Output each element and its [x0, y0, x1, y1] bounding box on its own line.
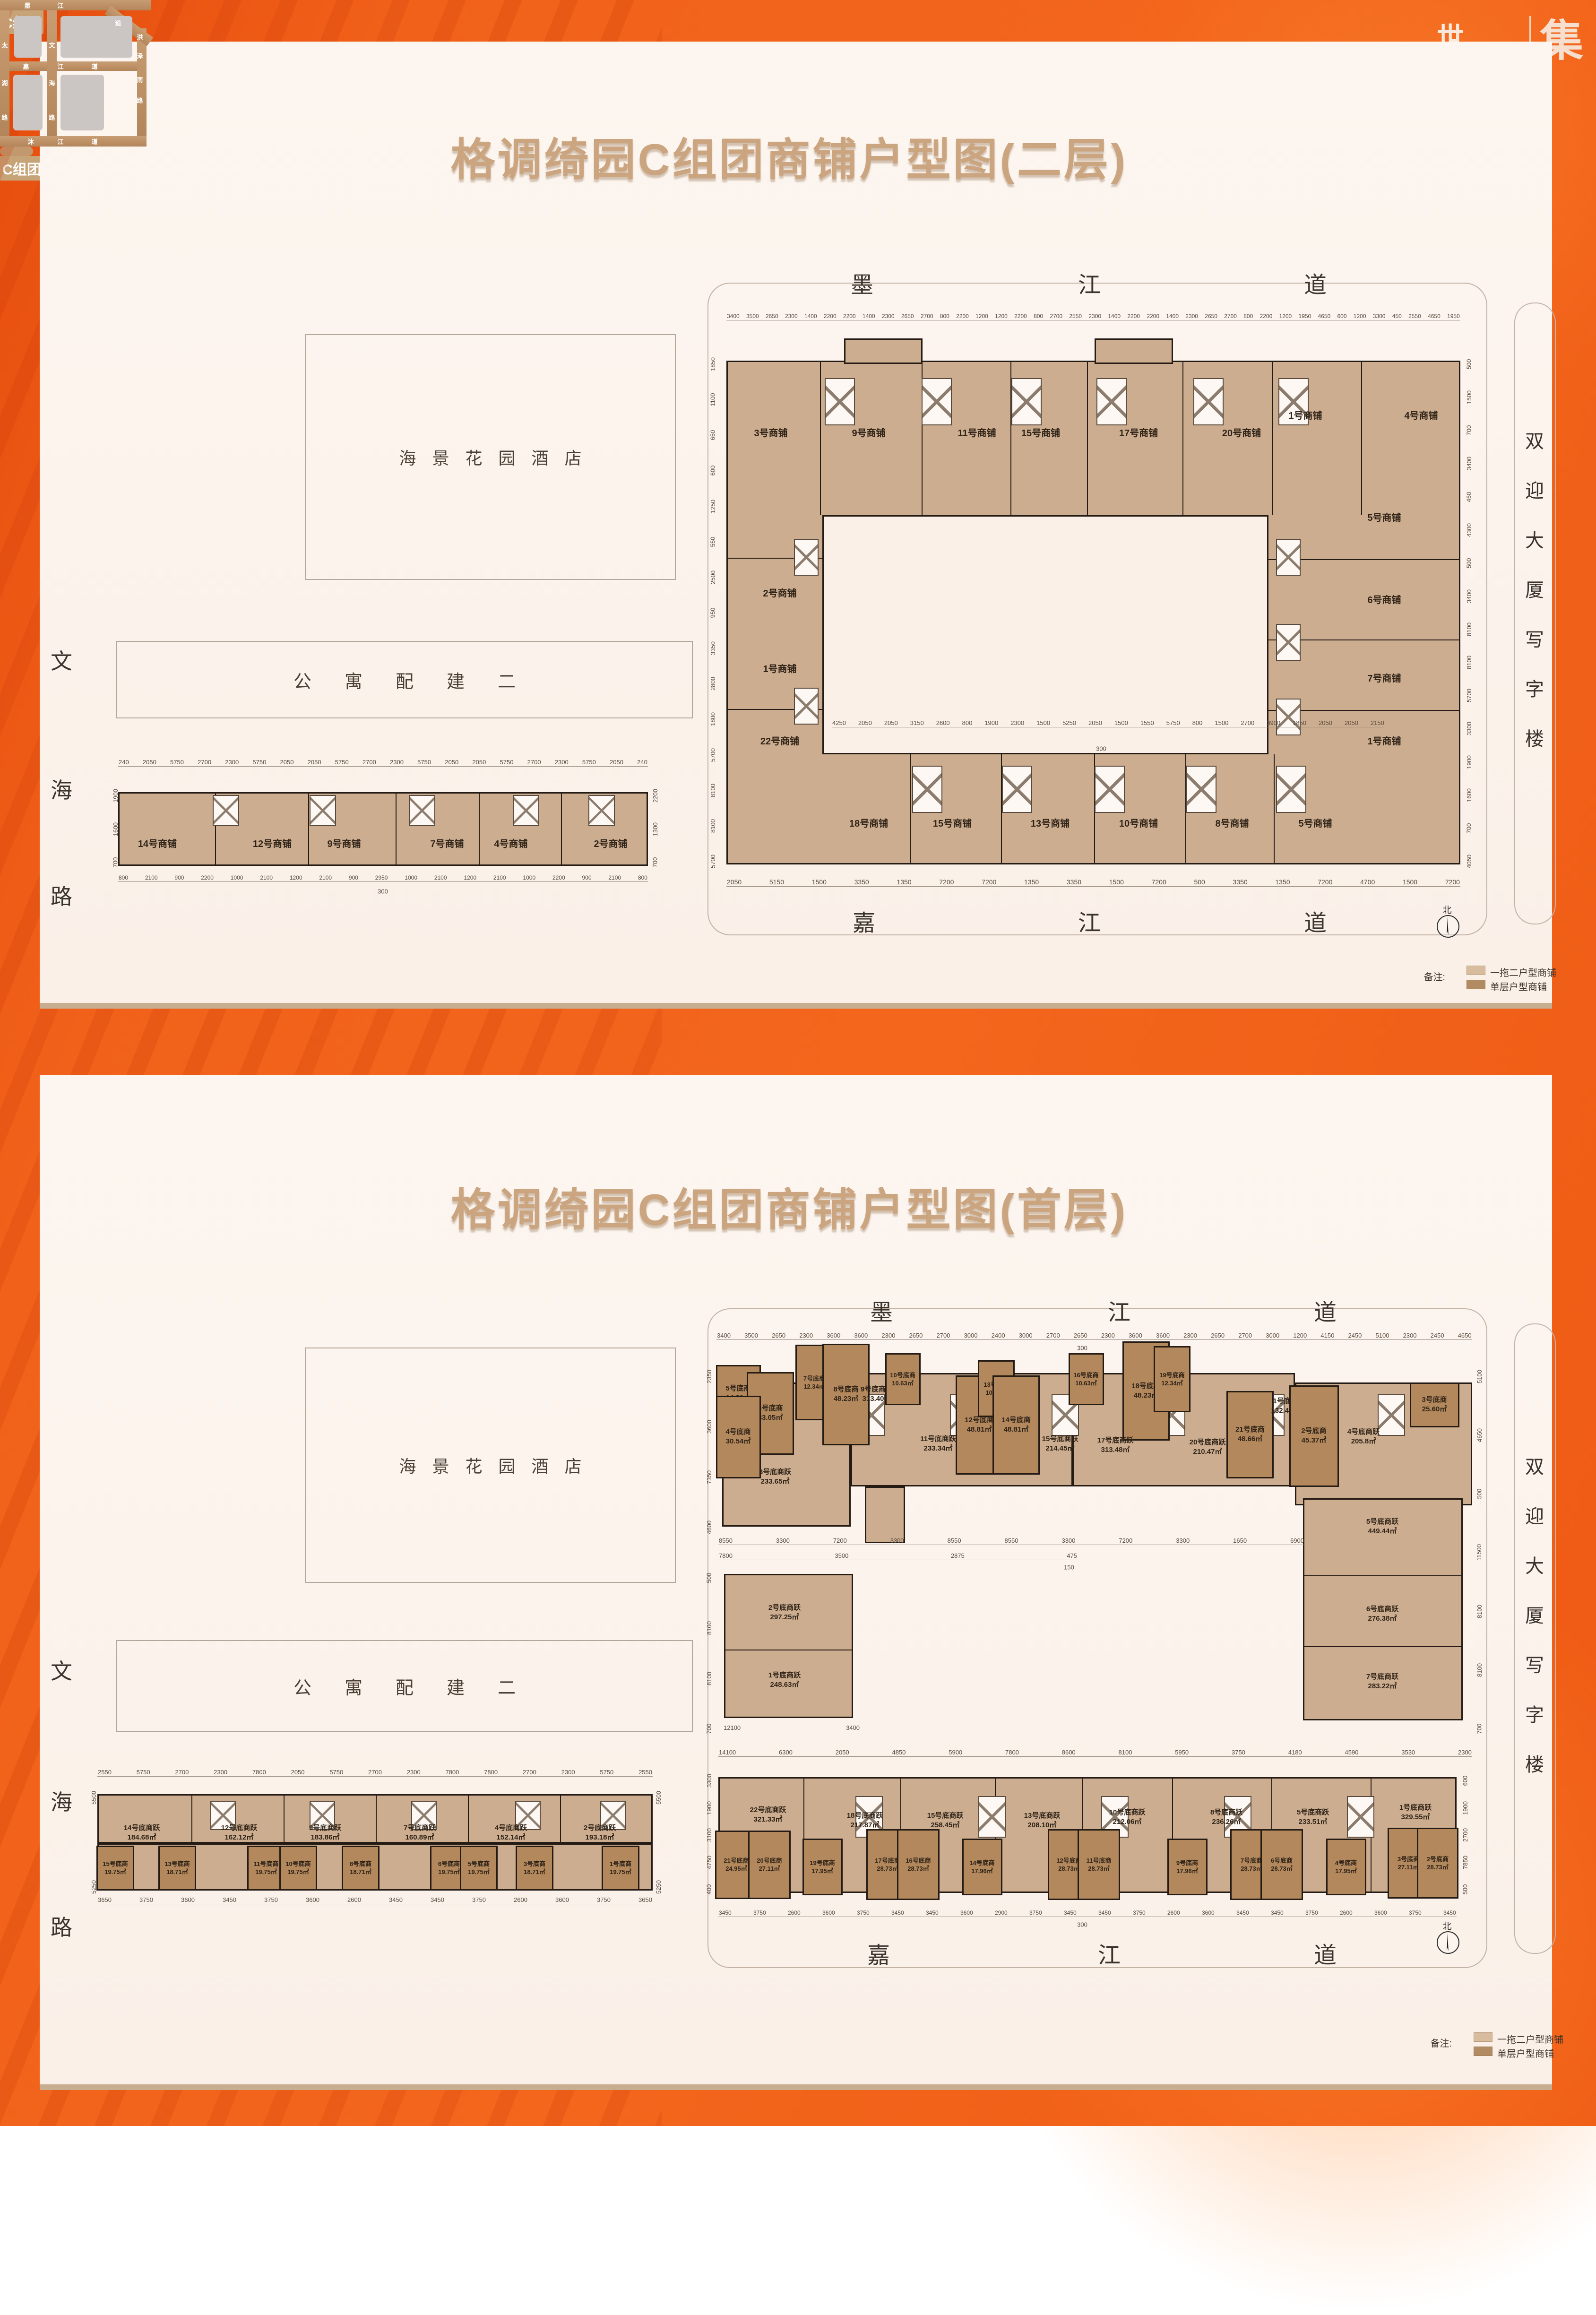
- dimension-value: 1900: [706, 1801, 713, 1815]
- unit-divider-wall: [479, 792, 480, 866]
- stair-elevator-core: [922, 378, 952, 425]
- dimension-value: 900: [174, 874, 184, 881]
- dimension-value: 1900: [1462, 1801, 1469, 1815]
- shop-unit-label: 15号底商跃258.45㎡: [927, 1811, 964, 1830]
- shop-unit-label: 3号底商跃233.65㎡: [759, 1468, 791, 1486]
- dimension-value: 4650: [1427, 313, 1441, 320]
- shop-unit-name: 1号商铺: [1367, 735, 1401, 748]
- dimension-value: 240: [637, 759, 648, 766]
- shop-unit-label: 7号商铺: [1367, 673, 1401, 685]
- dimension-value: 600: [1337, 313, 1347, 320]
- minimap-road-name-char: 道: [115, 18, 121, 27]
- shop-unit-name: 12号底商: [965, 1416, 994, 1425]
- dimension-value: 2050: [444, 759, 459, 766]
- shop-unit-label: 22号商铺: [760, 735, 799, 748]
- shop-unit-label: 15号底商19.75㎡: [103, 1860, 128, 1876]
- dimension-value: 1500: [1036, 719, 1051, 727]
- dimension-value: 5750: [335, 759, 349, 766]
- shop-unit-name: 18号底商跃: [847, 1811, 883, 1821]
- street-label-shuangying-char: 字: [1525, 1700, 1544, 1727]
- shop-unit-name: 10号底商: [285, 1860, 311, 1868]
- shop-unit-name: 2号商铺: [594, 838, 627, 850]
- minimap-c-cluster: C组团: [0, 156, 43, 181]
- shop-unit-label: 4号底商跃205.8㎡: [1347, 1427, 1380, 1446]
- dimension-value: 3750: [1305, 1909, 1319, 1917]
- shop-unit-area: 48.66㎡: [1235, 1434, 1265, 1444]
- dimension-value: 2300: [406, 1769, 421, 1776]
- dimension-value: 2400: [991, 1332, 1006, 1339]
- unit-divider-wall: [376, 1794, 377, 1843]
- dimension-value: 2150: [1370, 719, 1385, 727]
- dimension-value: 450: [1466, 492, 1473, 502]
- minimap-city-block: [60, 16, 132, 58]
- street-label-shuangying-char: 双: [1525, 426, 1544, 453]
- shop-unit-name: 19号底商: [1159, 1371, 1184, 1379]
- dimension-value: 2875: [950, 1552, 965, 1560]
- dimension-row: 780035002875475: [718, 1552, 1078, 1560]
- dimension-value: 8100: [1476, 1605, 1483, 1618]
- shop-unit-name: 8号底商跃: [1210, 1808, 1242, 1817]
- street-label-shuangying-char: 迎: [1525, 1501, 1544, 1529]
- dimension-column: 235036007350460050081008100700: [705, 1373, 713, 1732]
- dimension-value: 3450: [388, 1896, 403, 1904]
- building-block: [865, 1486, 905, 1543]
- shop-unit-name: 12号商铺: [253, 838, 292, 850]
- dimension-value: 7800: [252, 1769, 267, 1776]
- shop-unit-name: 3号底商: [1398, 1855, 1419, 1863]
- shop-unit-name: 11号底商: [254, 1860, 279, 1868]
- dimension-value: 1100: [709, 393, 716, 406]
- shop-unit-area: 214.45㎡: [1042, 1444, 1078, 1453]
- street-label-jiajiang-char: 道: [1314, 1936, 1337, 1969]
- shop-unit-name: 4号底商跃: [495, 1823, 527, 1833]
- dimension-value: 8100: [1466, 656, 1473, 669]
- dimension-value: 500: [1476, 1489, 1483, 1499]
- shop-unit-area: 18.71㎡: [164, 1868, 190, 1876]
- shop-unit-name: 2号底商跃: [768, 1603, 801, 1613]
- dimension-value: 1800: [709, 712, 716, 726]
- dimension-value: 7200: [1118, 1537, 1133, 1545]
- dimension-value: 3350: [709, 641, 716, 655]
- dimension-value: 3750: [753, 1909, 767, 1917]
- shop-unit-area: 184.68㎡: [124, 1833, 160, 1842]
- dimension-value: 3600: [305, 1896, 320, 1904]
- shop-unit-name: 5号商铺: [1298, 818, 1332, 830]
- shop-unit-area: 19.75㎡: [285, 1868, 311, 1876]
- dimension-value: 5750: [170, 759, 184, 766]
- shop-unit-label: 7号底商跃160.89㎡: [404, 1823, 436, 1842]
- dimension-value: 700: [1466, 823, 1473, 833]
- dimension-value: 550: [709, 536, 716, 547]
- dimension-value: 3000: [964, 1332, 978, 1339]
- shop-unit-area: 18.71㎡: [350, 1868, 371, 1876]
- street-label-jiajiang-char: 江: [1098, 1936, 1121, 1969]
- shop-unit-area: 27.11㎡: [1398, 1863, 1419, 1871]
- dimension-value: 2100: [145, 874, 158, 881]
- office-tower-box: [1514, 1323, 1556, 1954]
- shop-unit-label: 13号商铺: [1031, 818, 1070, 830]
- dimension-value: 2600: [347, 1896, 362, 1904]
- dimension-value: 2300: [1403, 1332, 1417, 1339]
- dimension-value: 2600: [787, 1909, 801, 1917]
- shop-unit-name: 9号商铺: [852, 427, 885, 440]
- shop-unit-label: 2号底商跃193.18㎡: [584, 1823, 616, 1842]
- dimension-value: 7200: [1445, 878, 1460, 886]
- dimension-value: 1350: [1024, 878, 1039, 886]
- dimension-column: 22001300700: [651, 792, 659, 866]
- shop-unit-name: 7号商铺: [1367, 673, 1401, 685]
- dimension-value: 1900: [984, 719, 999, 727]
- dimension-value: 4150: [1320, 1332, 1335, 1339]
- dimension-value: 2050: [1344, 719, 1359, 727]
- dimension-value: 2700: [920, 313, 934, 320]
- shop-unit-name: 19号底商: [810, 1859, 835, 1867]
- dimension-value: 3450: [891, 1909, 905, 1917]
- shop-unit-area: 258.45㎡: [927, 1821, 964, 1830]
- dimension-value: 3450: [718, 1909, 732, 1917]
- building-block: [724, 1574, 853, 1718]
- dimension-value: 3600: [854, 1332, 868, 1339]
- street-label-shuangying-char: 大: [1525, 1551, 1544, 1578]
- shop-unit-area: 28.73㎡: [1427, 1863, 1449, 1871]
- dimension-value: 4650: [1318, 313, 1331, 320]
- dimension-value: 5750: [1166, 719, 1181, 727]
- dimension-value: 2700: [197, 759, 212, 766]
- dimension-value: 7350: [706, 1470, 713, 1484]
- dimension-value: 4850: [891, 1749, 906, 1756]
- shop-unit-name: 11号底商: [1087, 1857, 1112, 1865]
- dimension-value: 3450: [1270, 1909, 1284, 1917]
- dimension-value: 1200: [289, 874, 303, 881]
- dimension-row: 4250205020503150260080019002300150052502…: [832, 719, 1385, 727]
- dimension-column: 19001600700: [112, 792, 119, 866]
- shop-unit-area: 25.60㎡: [1422, 1405, 1447, 1414]
- shop-unit-label: 5号商铺: [1367, 512, 1401, 524]
- dimension-value: 400: [706, 1884, 713, 1895]
- shop-unit-name: 1号商铺: [1288, 410, 1322, 422]
- shop-unit-area: 19.75㎡: [468, 1868, 490, 1876]
- dimension-value: 700: [652, 857, 659, 868]
- dimension-value: 600: [1462, 1776, 1469, 1786]
- stair-elevator-core: [1276, 699, 1301, 735]
- stair-elevator-core: [1095, 766, 1125, 813]
- shop-unit-area: 48.81㎡: [965, 1425, 994, 1434]
- shop-unit-label: 6号底商跃276.38㎡: [1366, 1605, 1398, 1624]
- shop-unit-name: 8号商铺: [1215, 818, 1249, 830]
- dimension-value: 2300: [785, 313, 798, 320]
- shop-unit-label: 3号底商27.11㎡: [1398, 1855, 1419, 1871]
- dimension-value: 475: [1066, 1552, 1078, 1560]
- street-label-shuangying-char: 楼: [1525, 724, 1544, 751]
- legend-note-label: 备注:: [1423, 2036, 1452, 2049]
- dimension-value: 3750: [1408, 1909, 1422, 1917]
- dimension-value: 500: [1462, 1884, 1469, 1895]
- dimension-value: 2700: [362, 759, 377, 766]
- dimension-value: 2650: [765, 313, 779, 320]
- shop-unit-name: 13号底商: [164, 1860, 190, 1868]
- shop-unit-label: 4号商铺: [1404, 410, 1438, 422]
- dimension-value: 3600: [706, 1420, 713, 1434]
- minimap-road-name-char: 太: [1, 41, 8, 50]
- unit-divider-wall: [1274, 754, 1275, 864]
- dimension-value: 4700: [1360, 878, 1375, 886]
- dimension-value: 2500: [709, 570, 716, 584]
- shop-unit-label: 3号底商25.60㎡: [1422, 1395, 1447, 1414]
- unit-divider-wall: [396, 792, 397, 866]
- compass-north-label: 北: [1442, 903, 1451, 916]
- dimension-value: 800: [1243, 313, 1253, 320]
- dimension-value: 3600: [1374, 1909, 1388, 1917]
- shop-unit-name: 1号底商跃: [768, 1671, 801, 1680]
- dimension-value: 2200: [200, 874, 214, 881]
- shop-unit-area: 217.87㎡: [847, 1821, 883, 1830]
- dimension-value: 5700: [709, 855, 716, 868]
- dimension-value: 8550: [718, 1537, 733, 1545]
- shop-unit-label: 11号底商28.73㎡: [1087, 1857, 1112, 1873]
- dimension-row: 8550330072003300855085503300720033001650…: [718, 1537, 1304, 1545]
- dimension-row: 3650375036003450375036002600345034503750…: [97, 1896, 653, 1904]
- dimension-value: 2050: [858, 719, 872, 727]
- dimension-value: 800: [940, 313, 950, 320]
- shop-unit-label: 6号商铺: [1367, 594, 1401, 606]
- shop-unit-label: 11号底商跃233.34㎡: [920, 1434, 956, 1453]
- dimension-value: 1200: [1353, 313, 1367, 320]
- minimap-road-name-char: 江: [57, 62, 63, 71]
- dimension-value: 650: [709, 430, 716, 441]
- unit-divider-wall: [1182, 361, 1183, 515]
- dimension-value: 4650: [1476, 1428, 1483, 1442]
- shop-unit-name: 2号底商: [1301, 1426, 1326, 1436]
- dimension-value: 3400: [1466, 589, 1473, 603]
- shop-unit-area: 17.96㎡: [1176, 1867, 1198, 1875]
- minimap-city-block: [13, 75, 43, 130]
- street-label-shuangying-char: 字: [1525, 674, 1544, 701]
- shop-unit-area: 193.18㎡: [584, 1833, 616, 1842]
- street-label-mojiang-char: 道: [1304, 266, 1327, 299]
- dimension-value: 3400: [845, 1724, 860, 1732]
- dimension-value: 3300: [890, 1537, 905, 1545]
- dimension-value: 1000: [522, 874, 536, 881]
- unit-divider-wall: [910, 754, 911, 864]
- dimension-value: 5250: [90, 1880, 97, 1894]
- dimension-value: 2550: [97, 1769, 112, 1776]
- dimension-value: 11500: [1476, 1544, 1483, 1561]
- shop-unit-label: 20号商铺: [1222, 427, 1261, 440]
- dimension-value: 800: [1192, 719, 1203, 727]
- dimension-value: 2050: [884, 719, 898, 727]
- street-label-shuangying-char: 大: [1525, 525, 1544, 553]
- minimap-road-name-char: 沐: [27, 137, 34, 146]
- shop-unit-area: 449.44㎡: [1366, 1527, 1398, 1536]
- dimension-value: 2300: [1183, 1332, 1198, 1339]
- shop-unit-name: 5号底商: [468, 1860, 490, 1868]
- shop-unit-label: 10号底商19.75㎡: [285, 1860, 311, 1876]
- shop-unit-area: 28.73㎡: [875, 1865, 900, 1873]
- compass-needle: [1444, 1933, 1451, 1952]
- dimension-value: 1950: [1298, 313, 1312, 320]
- dimension-value: 3150: [910, 719, 924, 727]
- dimension-value: 2600: [936, 719, 950, 727]
- dimension-value: 2650: [901, 313, 914, 320]
- shop-unit-label: 10号底商10.63㎡: [890, 1371, 915, 1387]
- shop-unit-name: 11号底商跃: [920, 1434, 956, 1444]
- dimension-row: 3450375026003600375034503450360029003750…: [718, 1909, 1457, 1917]
- building-block: [118, 792, 648, 866]
- dimension-value: 4300: [1466, 523, 1473, 537]
- dimension-value: 8100: [1466, 622, 1473, 636]
- dimension-value: 3650: [638, 1896, 653, 1904]
- shop-unit-label: 5号商铺: [1298, 818, 1332, 830]
- compass-north-label: 北: [1442, 1919, 1451, 1932]
- dimension-value: 6900: [1290, 1537, 1304, 1545]
- dimension-value: 4600: [706, 1520, 713, 1534]
- dimension-value: 1500: [1109, 878, 1124, 886]
- shop-unit-name: 10号底商跃: [1109, 1808, 1146, 1817]
- shop-unit-name: 4号底商: [725, 1427, 751, 1437]
- dimension-value: 1500: [1214, 719, 1229, 727]
- dimension-value: 2700: [527, 759, 542, 766]
- stair-elevator-core: [1378, 1394, 1405, 1436]
- dimension-value: 500: [1193, 878, 1205, 886]
- shop-unit-name: 16号底商: [906, 1857, 931, 1865]
- street-label-mojiang-char: 江: [1108, 1294, 1130, 1327]
- unit-divider-wall: [820, 361, 821, 515]
- unit-divider-wall: [284, 1794, 285, 1843]
- dimension-value: 2700: [174, 1769, 189, 1776]
- dimension-value: 12100: [723, 1724, 741, 1732]
- dimension-value: 3450: [222, 1896, 237, 1904]
- dimension-value: 5150: [769, 878, 785, 886]
- dimension-value: 2200: [843, 313, 856, 320]
- shop-unit-area: 276.38㎡: [1366, 1614, 1398, 1624]
- shop-unit-label: 15号商铺: [933, 818, 972, 830]
- building-block: [97, 1794, 653, 1843]
- dimension-value: 700: [1466, 425, 1473, 436]
- dimension-value: 600: [709, 466, 716, 476]
- dimension-value: 500: [1466, 558, 1473, 568]
- shop-unit-label: 8号底商48.23㎡: [833, 1385, 858, 1404]
- street-label-wenhai-char: 海: [51, 1785, 72, 1816]
- dimension-value: 3000: [1265, 1332, 1280, 1339]
- dimension-value: 1650: [1233, 1537, 1247, 1545]
- dimension-value: 1400: [862, 313, 876, 320]
- shop-unit-name: 22号底商跃: [750, 1805, 786, 1815]
- dimension-value: 1250: [709, 500, 716, 513]
- dimension-value: 4180: [1288, 1749, 1303, 1756]
- dimension-value: 3350: [854, 878, 870, 886]
- shop-unit-area: 48.23㎡: [833, 1394, 858, 1404]
- dimension-value: 2300: [1185, 313, 1199, 320]
- dimension-value: 14100: [718, 1749, 736, 1756]
- shop-unit-name: 2号商铺: [763, 587, 796, 600]
- minimap-road-name-char: 道: [91, 137, 97, 146]
- dimension-value: 5750: [329, 1769, 344, 1776]
- shop-unit-label: 7号商铺: [430, 838, 464, 850]
- dimension-value: 2600: [1339, 1909, 1353, 1917]
- shop-unit-name: 2号底商跃: [584, 1823, 616, 1833]
- shop-unit-name: 2号底商: [1427, 1855, 1449, 1863]
- shop-unit-name: 4号商铺: [1404, 410, 1438, 422]
- minimap-road-name-char: 路: [137, 96, 143, 105]
- shop-unit-name: 15号商铺: [933, 818, 972, 830]
- shop-unit-area: 18.71㎡: [524, 1868, 545, 1876]
- minimap-road-name-char: 嘉: [23, 62, 29, 71]
- dimension-value: 1850: [709, 357, 716, 371]
- shop-unit-label: 7号底商跃283.22㎡: [1366, 1672, 1398, 1691]
- dimension-value: 3450: [925, 1909, 939, 1917]
- dimension-value: 3750: [1231, 1749, 1246, 1756]
- dimension-value: 2100: [319, 874, 332, 881]
- dimension-value: 3450: [430, 1896, 445, 1904]
- dimension-value: 2300: [1101, 1332, 1115, 1339]
- dimension-value: 2350: [706, 1370, 713, 1383]
- dimension-value: 2600: [513, 1896, 528, 1904]
- shop-unit-label: 10号底商跃212.06㎡: [1109, 1808, 1146, 1827]
- shop-unit-name: 6号底商: [438, 1860, 460, 1868]
- dimension-value: 8100: [706, 1672, 713, 1685]
- dimension-value: 3000: [1018, 1332, 1033, 1339]
- dimension-value: 2100: [493, 874, 507, 881]
- dimension-value: 1200: [1293, 1332, 1307, 1339]
- stair-elevator-core: [1276, 624, 1301, 661]
- dimension-value: 500: [706, 1572, 713, 1583]
- dimension-value: 2300: [224, 759, 239, 766]
- dimension-value: 1500: [1466, 390, 1473, 404]
- dimension-value: 2700: [1240, 719, 1255, 727]
- dimension-value: 5750: [252, 759, 267, 766]
- dimension-value: 7200: [981, 878, 997, 886]
- dimension-value: 3400: [716, 1332, 731, 1339]
- dimension-value: 3300: [706, 1774, 713, 1788]
- dimension-value: 3500: [744, 1332, 759, 1339]
- shop-unit-label: 9号商铺: [327, 838, 361, 850]
- dimension-value: 2700: [368, 1769, 382, 1776]
- street-label-jiajiang-char: 道: [1304, 904, 1327, 937]
- shop-unit-area: 321.33㎡: [750, 1815, 786, 1824]
- dimension-value: 7800: [718, 1552, 733, 1560]
- shop-unit-name: 21号底商: [1235, 1425, 1265, 1434]
- shop-unit-label: 6号底商19.75㎡: [438, 1860, 460, 1876]
- shop-unit-name: 7号底商跃: [1366, 1672, 1398, 1682]
- dimension-value: 1000: [230, 874, 244, 881]
- shop-unit-area: 160.89㎡: [404, 1833, 436, 1842]
- dimension-value: 2700: [1046, 1332, 1061, 1339]
- dimension-value: 3600: [1128, 1332, 1143, 1339]
- dimension-value: 3600: [555, 1896, 569, 1904]
- stair-elevator-core: [409, 795, 435, 826]
- stair-elevator-core: [1002, 766, 1032, 813]
- dimension-value: 1300: [652, 822, 659, 836]
- dimension-value: 2200: [552, 874, 566, 881]
- dimension-value: 800: [638, 874, 648, 881]
- dimension-value: 2200: [1014, 313, 1027, 320]
- street-label-shuangying-char: 楼: [1525, 1749, 1544, 1777]
- dimension-value: 7800: [483, 1769, 498, 1776]
- dimension-value: 5100: [1476, 1370, 1483, 1383]
- dimension-row: 3400350026502300140022002200140023002650…: [726, 313, 1460, 320]
- shop-unit-area: 17.96㎡: [969, 1867, 994, 1875]
- shop-unit-area: 248.63㎡: [768, 1680, 801, 1690]
- compass-needle: [1444, 916, 1451, 935]
- shop-unit-name: 3号底商跃: [759, 1468, 791, 1477]
- minimap-road-name-char: 泽: [137, 52, 143, 60]
- shop-unit-label: 12号底商跃162.12㎡: [221, 1823, 258, 1842]
- dimension-value: 240: [118, 759, 129, 766]
- dimension-value: 3450: [1098, 1909, 1112, 1917]
- shop-unit-label: 3号商铺: [754, 427, 787, 440]
- dimension-value: 2300: [799, 1332, 813, 1339]
- dimension-value: 4750: [706, 1856, 713, 1869]
